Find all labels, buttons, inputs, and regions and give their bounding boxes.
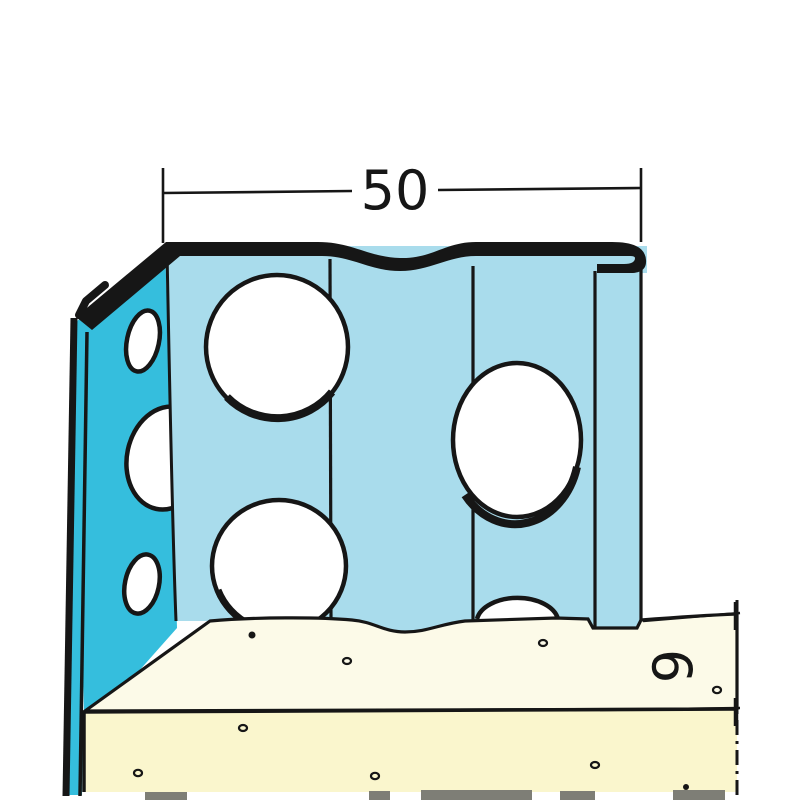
cut-mark <box>369 791 390 800</box>
board-bottom-layer <box>84 709 737 792</box>
speckle <box>683 784 689 790</box>
profile-technical-drawing: 50 9 <box>0 0 800 800</box>
width-dimension-label: 50 <box>361 159 430 222</box>
cut-mark <box>421 790 532 800</box>
dimension-line-right-segment <box>438 188 641 190</box>
speckle <box>249 632 256 639</box>
width-dimension: 50 <box>163 159 641 243</box>
thickness-dimension-label: 9 <box>642 649 705 683</box>
dimension-line-left-segment <box>163 191 352 193</box>
front-face <box>167 246 647 632</box>
cut-mark <box>673 790 725 800</box>
cut-mark <box>145 792 187 800</box>
board-layers <box>84 614 737 800</box>
cut-mark <box>560 791 595 800</box>
